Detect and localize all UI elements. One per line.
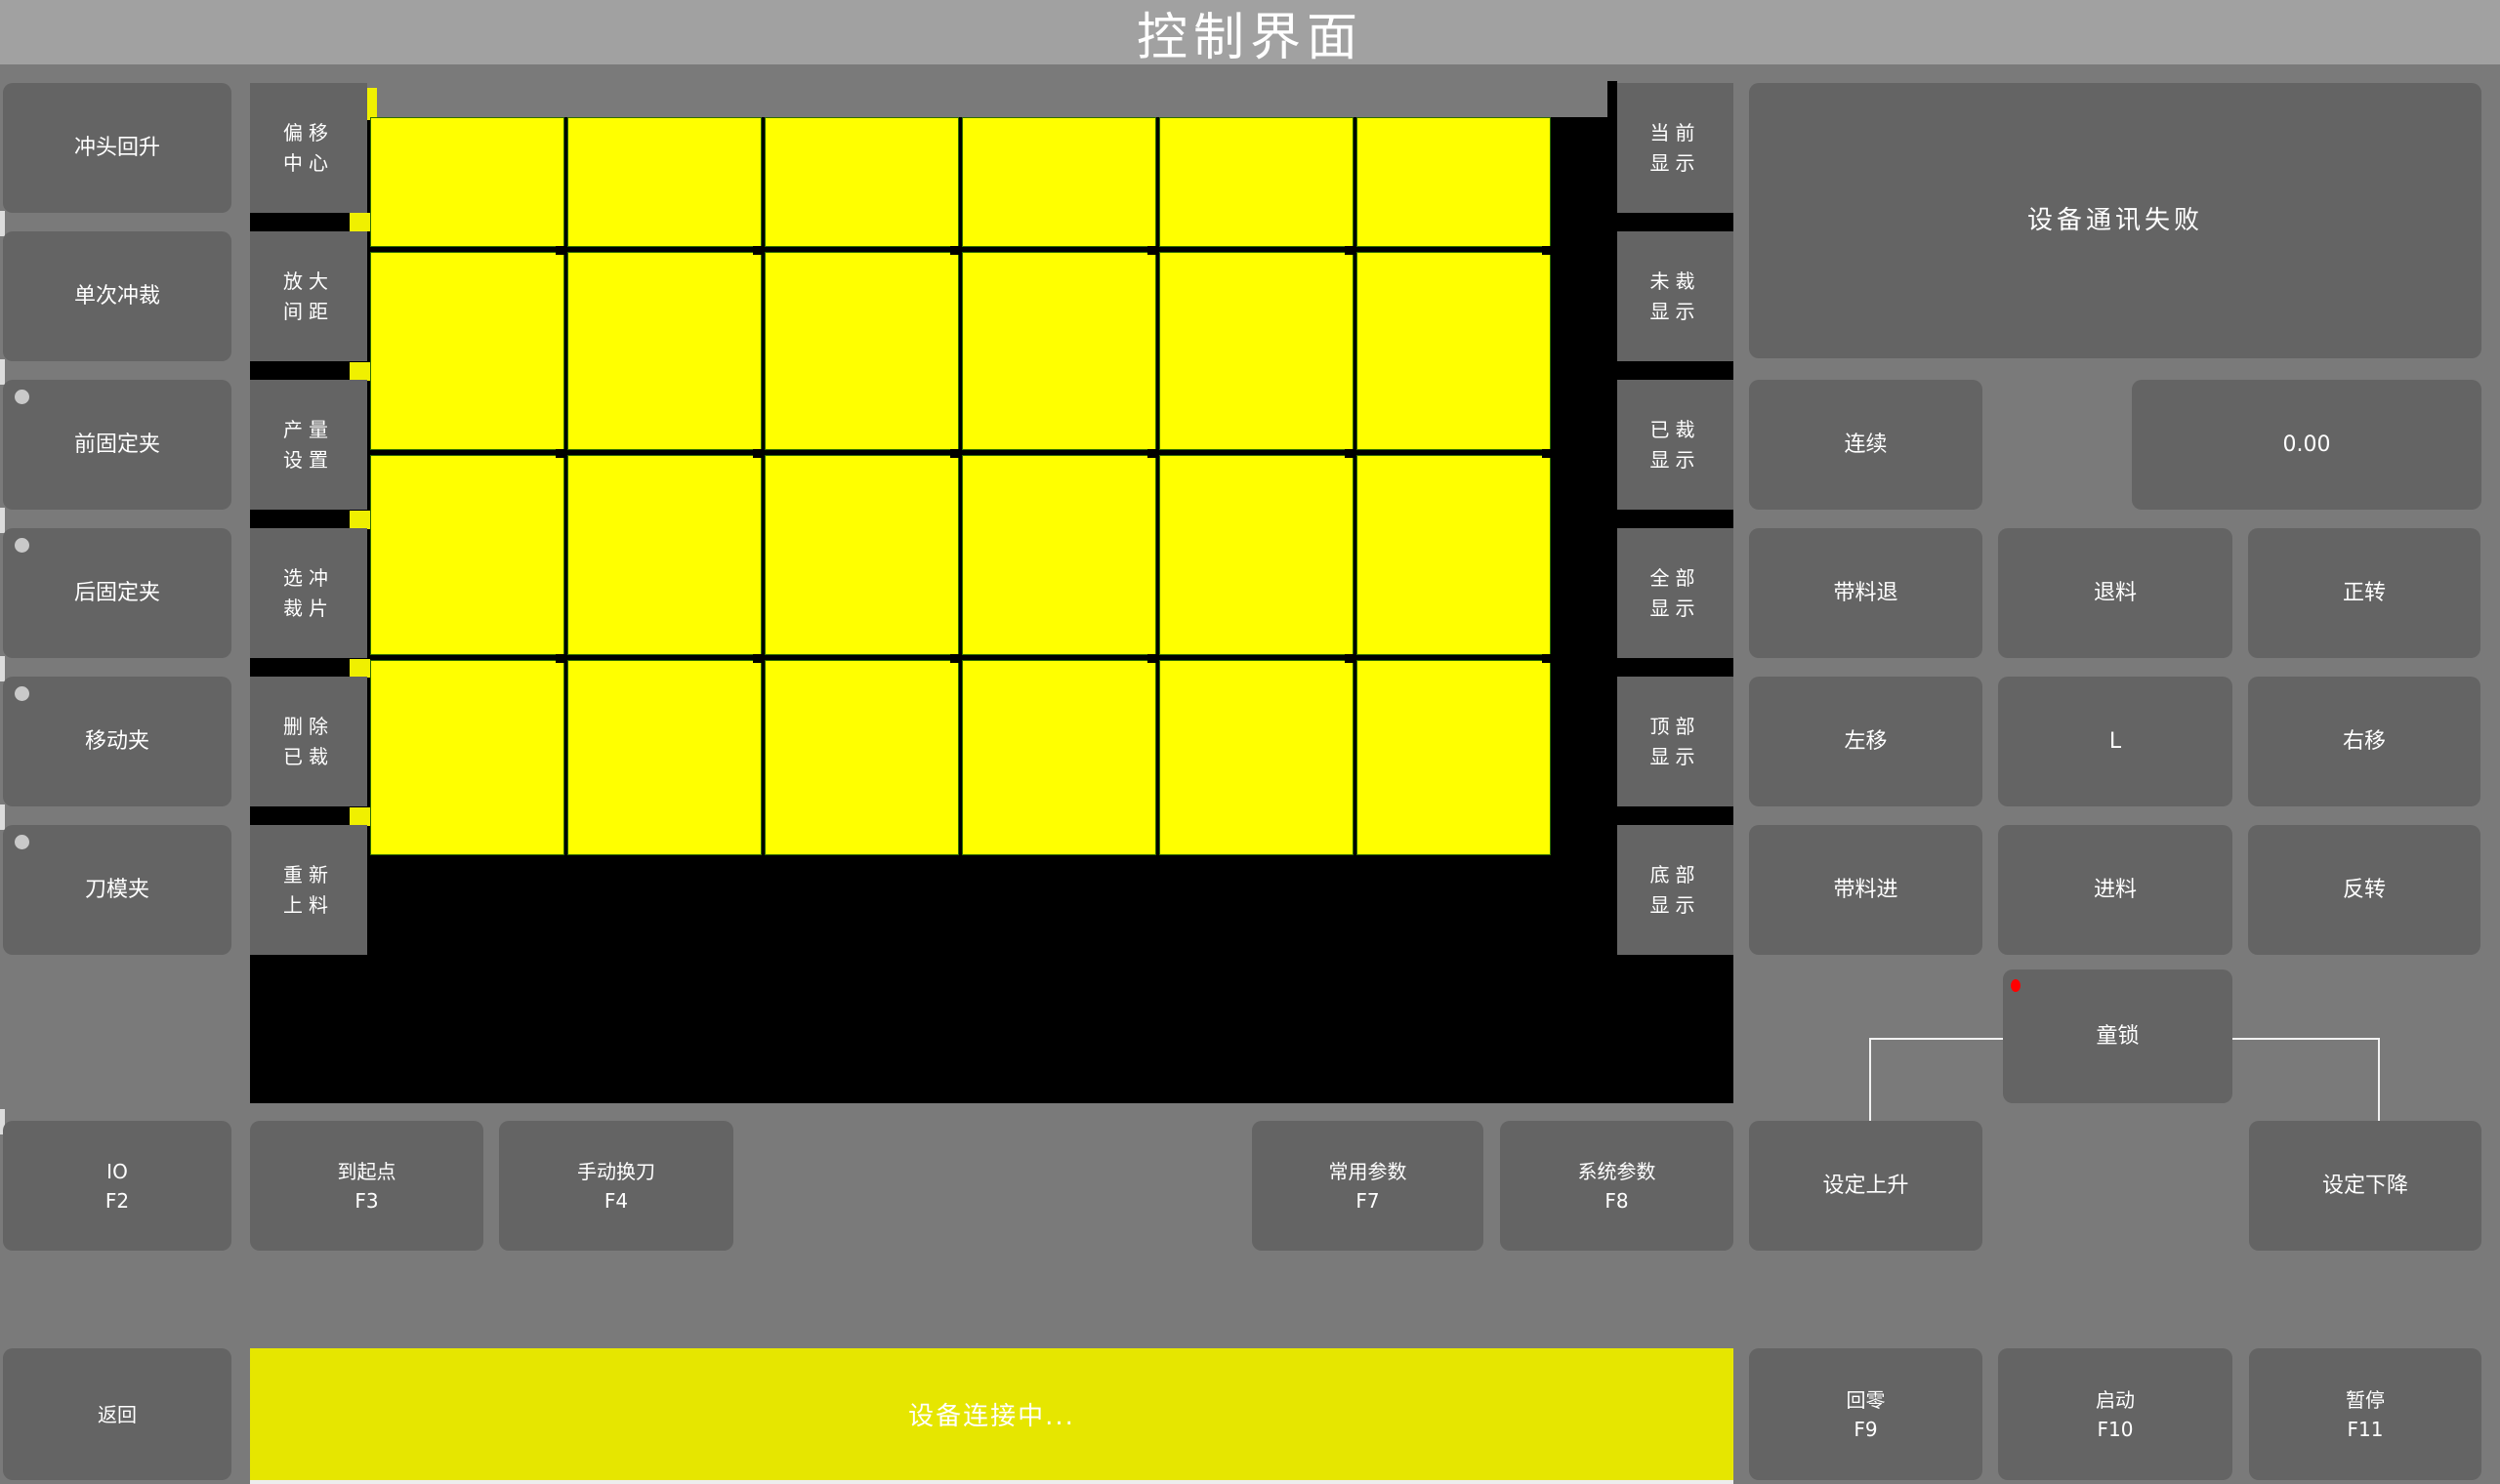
- button-label: 左移: [1844, 725, 1887, 758]
- button-label: 偏移中心: [282, 118, 335, 179]
- piece-cell[interactable]: [567, 455, 762, 655]
- page-title: 控制界面: [1137, 0, 1363, 69]
- display-button-top[interactable]: 顶部显示: [1617, 677, 1733, 806]
- left-button-3[interactable]: 后固定夹: [3, 528, 231, 658]
- material-edge-nub: [350, 213, 370, 231]
- button-label: 正转: [2343, 577, 2386, 609]
- button-label: 右移: [2343, 725, 2386, 758]
- tool-button-reload-material[interactable]: 重新上料: [250, 825, 367, 955]
- piece-cell[interactable]: [1356, 117, 1551, 247]
- display-button-current[interactable]: 当前显示: [1617, 83, 1733, 213]
- display-button-all[interactable]: 全部显示: [1617, 528, 1733, 658]
- left-button-0[interactable]: 冲头回升: [3, 83, 231, 213]
- button-label: 连续: [1844, 429, 1887, 461]
- button-label: 手动换刀F4: [577, 1157, 655, 1216]
- button-label: 后固定夹: [74, 577, 160, 609]
- alarm-message-panel: 设备通讯失败: [1749, 83, 2481, 358]
- back-button[interactable]: 返回: [3, 1348, 231, 1480]
- status-text: 设备连接中...: [908, 1396, 1075, 1432]
- piece-cell[interactable]: [962, 117, 1156, 247]
- piece-grid: [370, 117, 1551, 855]
- button-label: 童锁: [2096, 1020, 2139, 1052]
- home-zero-button[interactable]: 回零F9: [1749, 1348, 1982, 1480]
- tool-button-select-piece[interactable]: 选冲裁片: [250, 528, 367, 658]
- button-label: 重新上料: [282, 860, 335, 921]
- material-edge-nub: [350, 659, 370, 678]
- button-label: 反转: [2343, 874, 2386, 906]
- function-button-manual-tool-change[interactable]: 手动换刀F4: [499, 1121, 733, 1251]
- piece-cell[interactable]: [765, 117, 959, 247]
- display-button-uncut[interactable]: 未裁显示: [1617, 231, 1733, 361]
- piece-cell[interactable]: [962, 252, 1156, 450]
- tool-button-delete-cut[interactable]: 删除已裁: [250, 677, 367, 806]
- piece-cell[interactable]: [765, 660, 959, 855]
- button-label: 选冲裁片: [282, 563, 335, 624]
- piece-cell[interactable]: [962, 455, 1156, 655]
- left-button-5[interactable]: 刀模夹: [3, 825, 231, 955]
- alarm-text: 设备通讯失败: [2027, 202, 2203, 240]
- piece-cell[interactable]: [1356, 455, 1551, 655]
- piece-cell[interactable]: [1356, 252, 1551, 450]
- connection-status-bar: 设备连接中...: [250, 1348, 1733, 1480]
- button-label: 带料退: [1833, 577, 1897, 609]
- piece-cell[interactable]: [567, 660, 762, 855]
- move-left-button[interactable]: 左移: [1749, 677, 1982, 806]
- left-button-2[interactable]: 前固定夹: [3, 380, 231, 510]
- connector-line: [2378, 1038, 2380, 1121]
- indicator-dot: [15, 390, 29, 404]
- indicator-dot: [15, 686, 29, 701]
- display-button-bottom[interactable]: 底部显示: [1617, 825, 1733, 955]
- retract-button[interactable]: 退料: [1998, 528, 2232, 658]
- button-label: 移动夹: [85, 725, 149, 758]
- material-edge-nub: [350, 807, 370, 826]
- piece-cell[interactable]: [765, 455, 959, 655]
- piece-cell[interactable]: [370, 455, 564, 655]
- button-label: 启动F10: [2096, 1385, 2135, 1444]
- button-label: 当前显示: [1649, 118, 1702, 179]
- button-label: 已裁显示: [1649, 415, 1702, 475]
- button-label: 底部显示: [1649, 860, 1702, 921]
- button-label: 进料: [2094, 874, 2137, 906]
- button-label: 系统参数F8: [1578, 1157, 1656, 1216]
- forward-rotate-button[interactable]: 正转: [2248, 528, 2480, 658]
- reverse-rotate-button[interactable]: 反转: [2248, 825, 2480, 955]
- button-label: 单次冲裁: [74, 280, 160, 312]
- display-button-cut[interactable]: 已裁显示: [1617, 380, 1733, 510]
- edge-tick: [0, 211, 5, 236]
- piece-cell[interactable]: [1159, 455, 1354, 655]
- button-label: 设定下降: [2322, 1170, 2408, 1202]
- button-label: IOF2: [105, 1157, 129, 1216]
- button-label: 返回: [98, 1400, 137, 1429]
- button-label: 到起点F3: [338, 1157, 396, 1216]
- button-label: 顶部显示: [1649, 712, 1702, 772]
- button-label: 回零F9: [1847, 1385, 1886, 1444]
- indicator-dot: [15, 538, 29, 553]
- belt-retract-button[interactable]: 带料退: [1749, 528, 1982, 658]
- tool-button-enlarge-spacing[interactable]: 放大间距: [250, 231, 367, 361]
- tool-button-yield-settings[interactable]: 产量设置: [250, 380, 367, 510]
- move-right-button[interactable]: 右移: [2248, 677, 2480, 806]
- start-button[interactable]: 启动F10: [1998, 1348, 2232, 1480]
- connector-line: [2232, 1038, 2378, 1040]
- edge-tick: [0, 804, 5, 830]
- canvas-right-bar: [1607, 81, 1617, 1103]
- button-label: 常用参数F7: [1329, 1157, 1407, 1216]
- button-label: 前固定夹: [74, 429, 160, 461]
- edge-tick: [0, 656, 5, 681]
- button-label: 未裁显示: [1649, 267, 1702, 327]
- button-label: 退料: [2094, 577, 2137, 609]
- button-label: 产量设置: [282, 415, 335, 475]
- child-lock-button[interactable]: 童锁: [2003, 969, 2232, 1103]
- piece-cell[interactable]: [1356, 660, 1551, 855]
- edge-tick: [0, 359, 5, 385]
- button-label: L: [2109, 725, 2121, 758]
- piece-cell[interactable]: [567, 117, 762, 247]
- edge-tick: [0, 508, 5, 533]
- tool-button-offset-center[interactable]: 偏移中心: [250, 83, 367, 213]
- button-label: 删除已裁: [282, 712, 335, 772]
- feed-button[interactable]: 进料: [1998, 825, 2232, 955]
- function-button-io[interactable]: IOF2: [3, 1121, 231, 1251]
- piece-cell[interactable]: [567, 252, 762, 450]
- piece-cell[interactable]: [370, 252, 564, 450]
- mode-continuous-button[interactable]: 连续: [1749, 380, 1982, 510]
- piece-cell[interactable]: [370, 117, 564, 247]
- value-display-field[interactable]: 0.00: [2132, 380, 2481, 510]
- indicator-dot: [15, 835, 29, 849]
- piece-cell[interactable]: [962, 660, 1156, 855]
- l-button[interactable]: L: [1998, 677, 2232, 806]
- material-left-strip: [367, 88, 377, 120]
- left-button-4[interactable]: 移动夹: [3, 677, 231, 806]
- set-rise-button[interactable]: 设定上升: [1749, 1121, 1982, 1251]
- button-label: 冲头回升: [74, 132, 160, 164]
- button-label: 放大间距: [282, 267, 335, 327]
- button-label: 设定上升: [1822, 1170, 1908, 1202]
- button-label: 全部显示: [1649, 563, 1702, 624]
- function-button-go-origin[interactable]: 到起点F3: [250, 1121, 483, 1251]
- material-edge-nub: [350, 511, 370, 529]
- jog-button-grid: 带料退 退料 正转 左移 L 右移 带料进 进料 反转: [1749, 528, 2481, 955]
- piece-cell[interactable]: [1159, 252, 1354, 450]
- function-button-system-params[interactable]: 系统参数F8: [1500, 1121, 1733, 1251]
- left-button-1[interactable]: 单次冲裁: [3, 231, 231, 361]
- piece-cell[interactable]: [370, 660, 564, 855]
- belt-feed-button[interactable]: 带料进: [1749, 825, 1982, 955]
- value-text: 0.00: [2283, 429, 2331, 461]
- button-label: 暂停F11: [2346, 1385, 2385, 1444]
- set-fall-button[interactable]: 设定下降: [2249, 1121, 2481, 1251]
- pause-button[interactable]: 暂停F11: [2249, 1348, 2481, 1480]
- piece-cell[interactable]: [1159, 660, 1354, 855]
- piece-cell[interactable]: [765, 252, 959, 450]
- canvas-top-band: [377, 88, 1607, 117]
- control-screen: 控制界面 冲头回升 单次冲裁 前固定夹 后固定夹 移动夹 刀模夹 偏移中心 放大…: [0, 0, 2500, 1484]
- material-edge-nub: [350, 362, 370, 381]
- button-label: 刀模夹: [85, 874, 149, 906]
- button-label: 带料进: [1833, 874, 1897, 906]
- connector-line: [1869, 1038, 2003, 1040]
- title-bar: 控制界面: [0, 0, 2500, 64]
- function-button-common-params[interactable]: 常用参数F7: [1252, 1121, 1483, 1251]
- connector-line: [1869, 1038, 1871, 1121]
- child-lock-indicator-dot: [2011, 979, 2021, 992]
- piece-cell[interactable]: [1159, 117, 1354, 247]
- status-bar-underline: [250, 1480, 1733, 1484]
